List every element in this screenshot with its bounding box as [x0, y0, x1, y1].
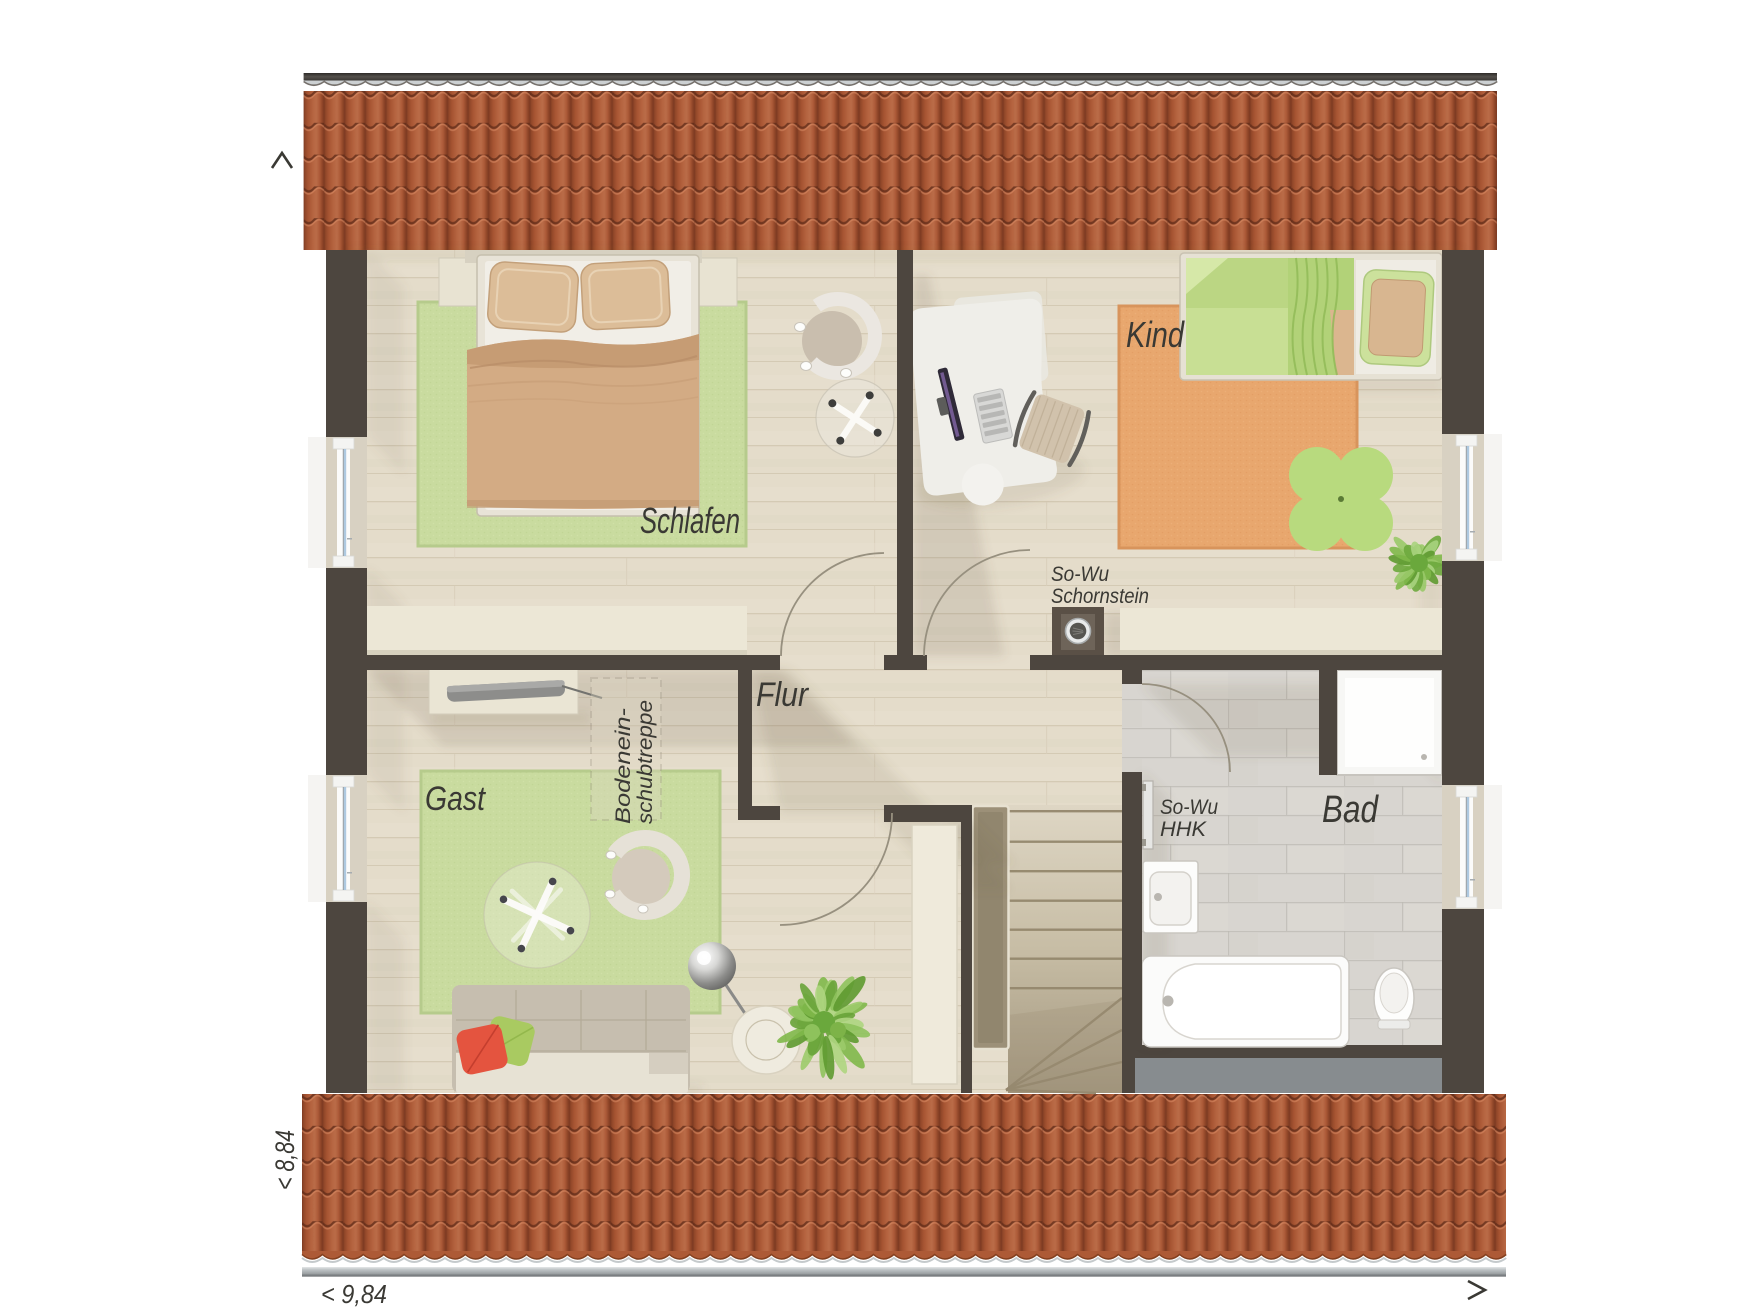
svg-text:So-Wu: So-Wu — [1051, 563, 1109, 586]
svg-text:Schlafen: Schlafen — [640, 500, 740, 541]
svg-text:< 8,84: < 8,84 — [270, 1130, 300, 1190]
svg-text:Flur: Flur — [756, 676, 809, 714]
svg-text:Schornstein: Schornstein — [1051, 585, 1149, 608]
svg-text:Bodenein-: Bodenein- — [612, 708, 635, 824]
svg-text:HHK: HHK — [1160, 818, 1207, 841]
svg-text:schubtreppe: schubtreppe — [634, 700, 657, 824]
svg-text:< 9,84: < 9,84 — [321, 1279, 387, 1309]
svg-text:So-Wu: So-Wu — [1160, 796, 1218, 819]
svg-text:Gast: Gast — [425, 780, 486, 818]
svg-text:Bad: Bad — [1322, 789, 1380, 831]
svg-text:Kind: Kind — [1126, 314, 1185, 355]
